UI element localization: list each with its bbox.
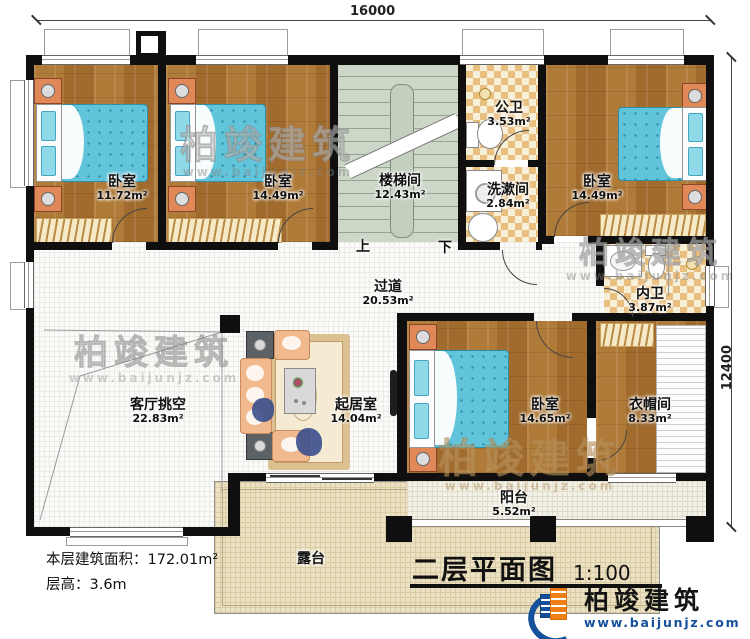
room-label-terrace: 露台 [297, 551, 325, 567]
wall [544, 55, 608, 65]
wall [26, 55, 34, 80]
ceiling-light-icon [686, 258, 698, 270]
room-label-bedroom2: 卧室 14.49m² [252, 174, 303, 203]
room-name: 公卫 [487, 100, 530, 116]
bed-headboard [36, 104, 62, 182]
wall [588, 236, 714, 244]
dimension-line-right [731, 58, 732, 528]
room-area: 5.52m² [492, 506, 535, 519]
window-bay [714, 266, 729, 308]
floor-height-note: 层高：3.6m [46, 573, 127, 598]
bed-headboard [682, 107, 708, 181]
floor-plan-canvas: 卧室 11.72m² 卧室 14.49m² 楼梯间 12.43m² 公卫 3.5… [0, 0, 750, 639]
nightstand-knob [416, 330, 430, 344]
nightstand [34, 78, 62, 104]
wall [596, 244, 604, 286]
room-label-stairwell: 楼梯间 12.43m² [374, 173, 425, 202]
window [608, 473, 676, 483]
pillow [175, 111, 190, 141]
window-bay [44, 29, 130, 57]
stair-up-mark: 上 [356, 236, 370, 256]
wall [26, 527, 70, 536]
room-name: 卧室 [252, 174, 303, 190]
tv-icon [390, 370, 397, 416]
window [24, 80, 34, 186]
bed-headboard [409, 350, 435, 448]
window [42, 55, 130, 65]
room-label-private-bath: 内卫 3.87m² [628, 286, 671, 315]
flower-vase-icon [293, 377, 305, 391]
coffee-table [284, 368, 316, 414]
room-label-bedroom4: 卧室 14.65m² [519, 397, 570, 426]
cup-icon [294, 399, 298, 403]
column [530, 516, 556, 542]
wall [228, 473, 240, 536]
window [460, 55, 544, 65]
nightstand-knob [41, 192, 55, 206]
cloakroom-rack [600, 323, 654, 347]
title-block: 二层平面图 1:100 [412, 548, 631, 587]
sofa [240, 358, 272, 434]
table-lamp-icon [254, 440, 266, 452]
room-name: 客厅挑空 [130, 397, 186, 413]
brand-logo-icon [528, 588, 578, 636]
nightstand [168, 186, 196, 212]
end-table [246, 331, 274, 359]
room-name: 卧室 [571, 174, 622, 190]
wall [397, 473, 608, 481]
room-label-corridor: 过道 20.53m² [362, 279, 413, 308]
room-name: 露台 [297, 551, 325, 567]
wall [397, 313, 407, 481]
room-area: 20.53m² [362, 295, 413, 308]
room-name: 楼梯间 [374, 173, 425, 189]
window-bay [610, 29, 684, 57]
wall [26, 308, 34, 536]
round-sink [468, 213, 498, 242]
wall [26, 242, 112, 250]
wall [528, 160, 542, 167]
column [386, 516, 412, 542]
wall [312, 242, 338, 250]
wall [706, 306, 714, 521]
window-sill [66, 537, 188, 546]
room-name: 过道 [362, 279, 413, 295]
brand-url: www.baijunjz.com [584, 617, 740, 630]
armchair [274, 330, 310, 360]
room-area: 14.49m² [571, 190, 622, 203]
pillow [175, 146, 190, 176]
room-area: 14.04m² [330, 413, 381, 426]
nightstand-knob [175, 84, 189, 98]
window [608, 55, 684, 65]
ceiling-light-icon [479, 88, 491, 100]
pillow [688, 113, 703, 142]
sliding-door-leaf [322, 478, 372, 480]
nightstand [682, 184, 708, 210]
wall [288, 55, 460, 65]
nightstand [168, 78, 196, 104]
wall [587, 321, 596, 418]
room-name: 内卫 [628, 286, 671, 302]
room-name: 卧室 [519, 397, 570, 413]
person-figure [252, 398, 274, 422]
brand-logo-text: 柏竣建筑 www.baijunjz.com [584, 588, 740, 630]
window-bay [198, 29, 288, 57]
table-lamp-icon [254, 339, 266, 351]
pillow [41, 146, 56, 176]
room-area: 12.43m² [374, 189, 425, 202]
brand-name: 柏竣建筑 [584, 588, 740, 613]
pillow [41, 111, 56, 141]
cup-icon [302, 401, 306, 405]
dimension-line-top [36, 20, 712, 21]
sink-basin [610, 251, 636, 271]
room-label-public-bath: 公卫 3.53m² [487, 100, 530, 129]
wall [706, 55, 714, 266]
pillow [688, 147, 703, 176]
toilet-bowl [648, 253, 665, 279]
window [24, 262, 34, 308]
wall [538, 55, 546, 244]
column [220, 315, 240, 333]
sliding-door-leaf [270, 475, 320, 477]
wall [587, 458, 596, 473]
wall [462, 160, 494, 167]
room-label-bedroom3: 卧室 14.49m² [571, 174, 622, 203]
dimension-width: 16000 [350, 4, 395, 19]
cushion [282, 336, 301, 350]
logo-orange-tower-icon [550, 588, 567, 620]
pillow [414, 403, 429, 439]
room-name: 起居室 [330, 397, 381, 413]
bed-headboard [170, 104, 196, 182]
room-name: 阳台 [492, 490, 535, 506]
bed-sheet [660, 108, 682, 178]
nightstand [682, 83, 708, 109]
nightstand [409, 324, 437, 350]
wall [458, 55, 466, 250]
balcony-floor [407, 481, 706, 519]
room-label-balcony: 阳台 5.52m² [492, 490, 535, 519]
room-area: 3.87m² [628, 302, 671, 315]
dimension-depth: 12400 [720, 345, 735, 390]
nightstand-knob [688, 89, 702, 103]
room-label-living-void: 客厅挑空 22.83m² [130, 397, 186, 426]
stair-down-mark: 下 [438, 237, 452, 257]
room-name: 衣帽间 [628, 397, 671, 413]
room-area: 8.33m² [628, 413, 671, 426]
nightstand [34, 186, 62, 212]
wall [397, 313, 534, 321]
flue-opening [141, 36, 158, 53]
window [70, 527, 183, 537]
wall [462, 242, 500, 250]
wall [158, 55, 166, 250]
person-figure [296, 428, 322, 456]
room-label-family-room: 起居室 14.04m² [330, 397, 381, 426]
room-area: 14.49m² [252, 190, 303, 203]
closet-rack [168, 218, 282, 243]
room-name: 洗漱间 [486, 182, 529, 198]
wall [26, 186, 34, 262]
cushion [246, 365, 264, 381]
brand-logo: 柏竣建筑 www.baijunjz.com [528, 588, 740, 636]
end-table [246, 432, 274, 460]
wall [542, 236, 554, 244]
vanity-counter [604, 245, 642, 277]
room-area: 11.72m² [96, 190, 147, 203]
nightstand-knob [175, 192, 189, 206]
column [686, 516, 714, 542]
nightstand-knob [688, 190, 702, 204]
window-bay [462, 29, 544, 57]
window [196, 55, 288, 65]
nightstand-knob [41, 84, 55, 98]
plan-title: 二层平面图 [412, 548, 557, 587]
pillow [414, 360, 429, 396]
balcony-railing [407, 519, 706, 527]
wall [676, 473, 714, 481]
room-area: 22.83m² [130, 413, 186, 426]
room-label-cloakroom: 衣帽间 8.33m² [628, 397, 671, 426]
room-label-washroom: 洗漱间 2.84m² [486, 182, 529, 211]
room-area: 14.65m² [519, 413, 570, 426]
wall [228, 473, 268, 481]
room-name: 卧室 [96, 174, 147, 190]
room-area: 2.84m² [486, 198, 529, 211]
window [705, 266, 715, 306]
nightstand [409, 446, 437, 472]
closet-rack [36, 218, 112, 243]
wall [330, 55, 338, 250]
room-label-bedroom1: 卧室 11.72m² [96, 174, 147, 203]
nightstand-knob [416, 452, 430, 466]
floor-area-note: 本层建筑面积：172.01m² [46, 548, 218, 573]
stair-center-rail [390, 84, 414, 238]
wall [146, 242, 278, 250]
room-area: 3.53m² [487, 116, 530, 129]
